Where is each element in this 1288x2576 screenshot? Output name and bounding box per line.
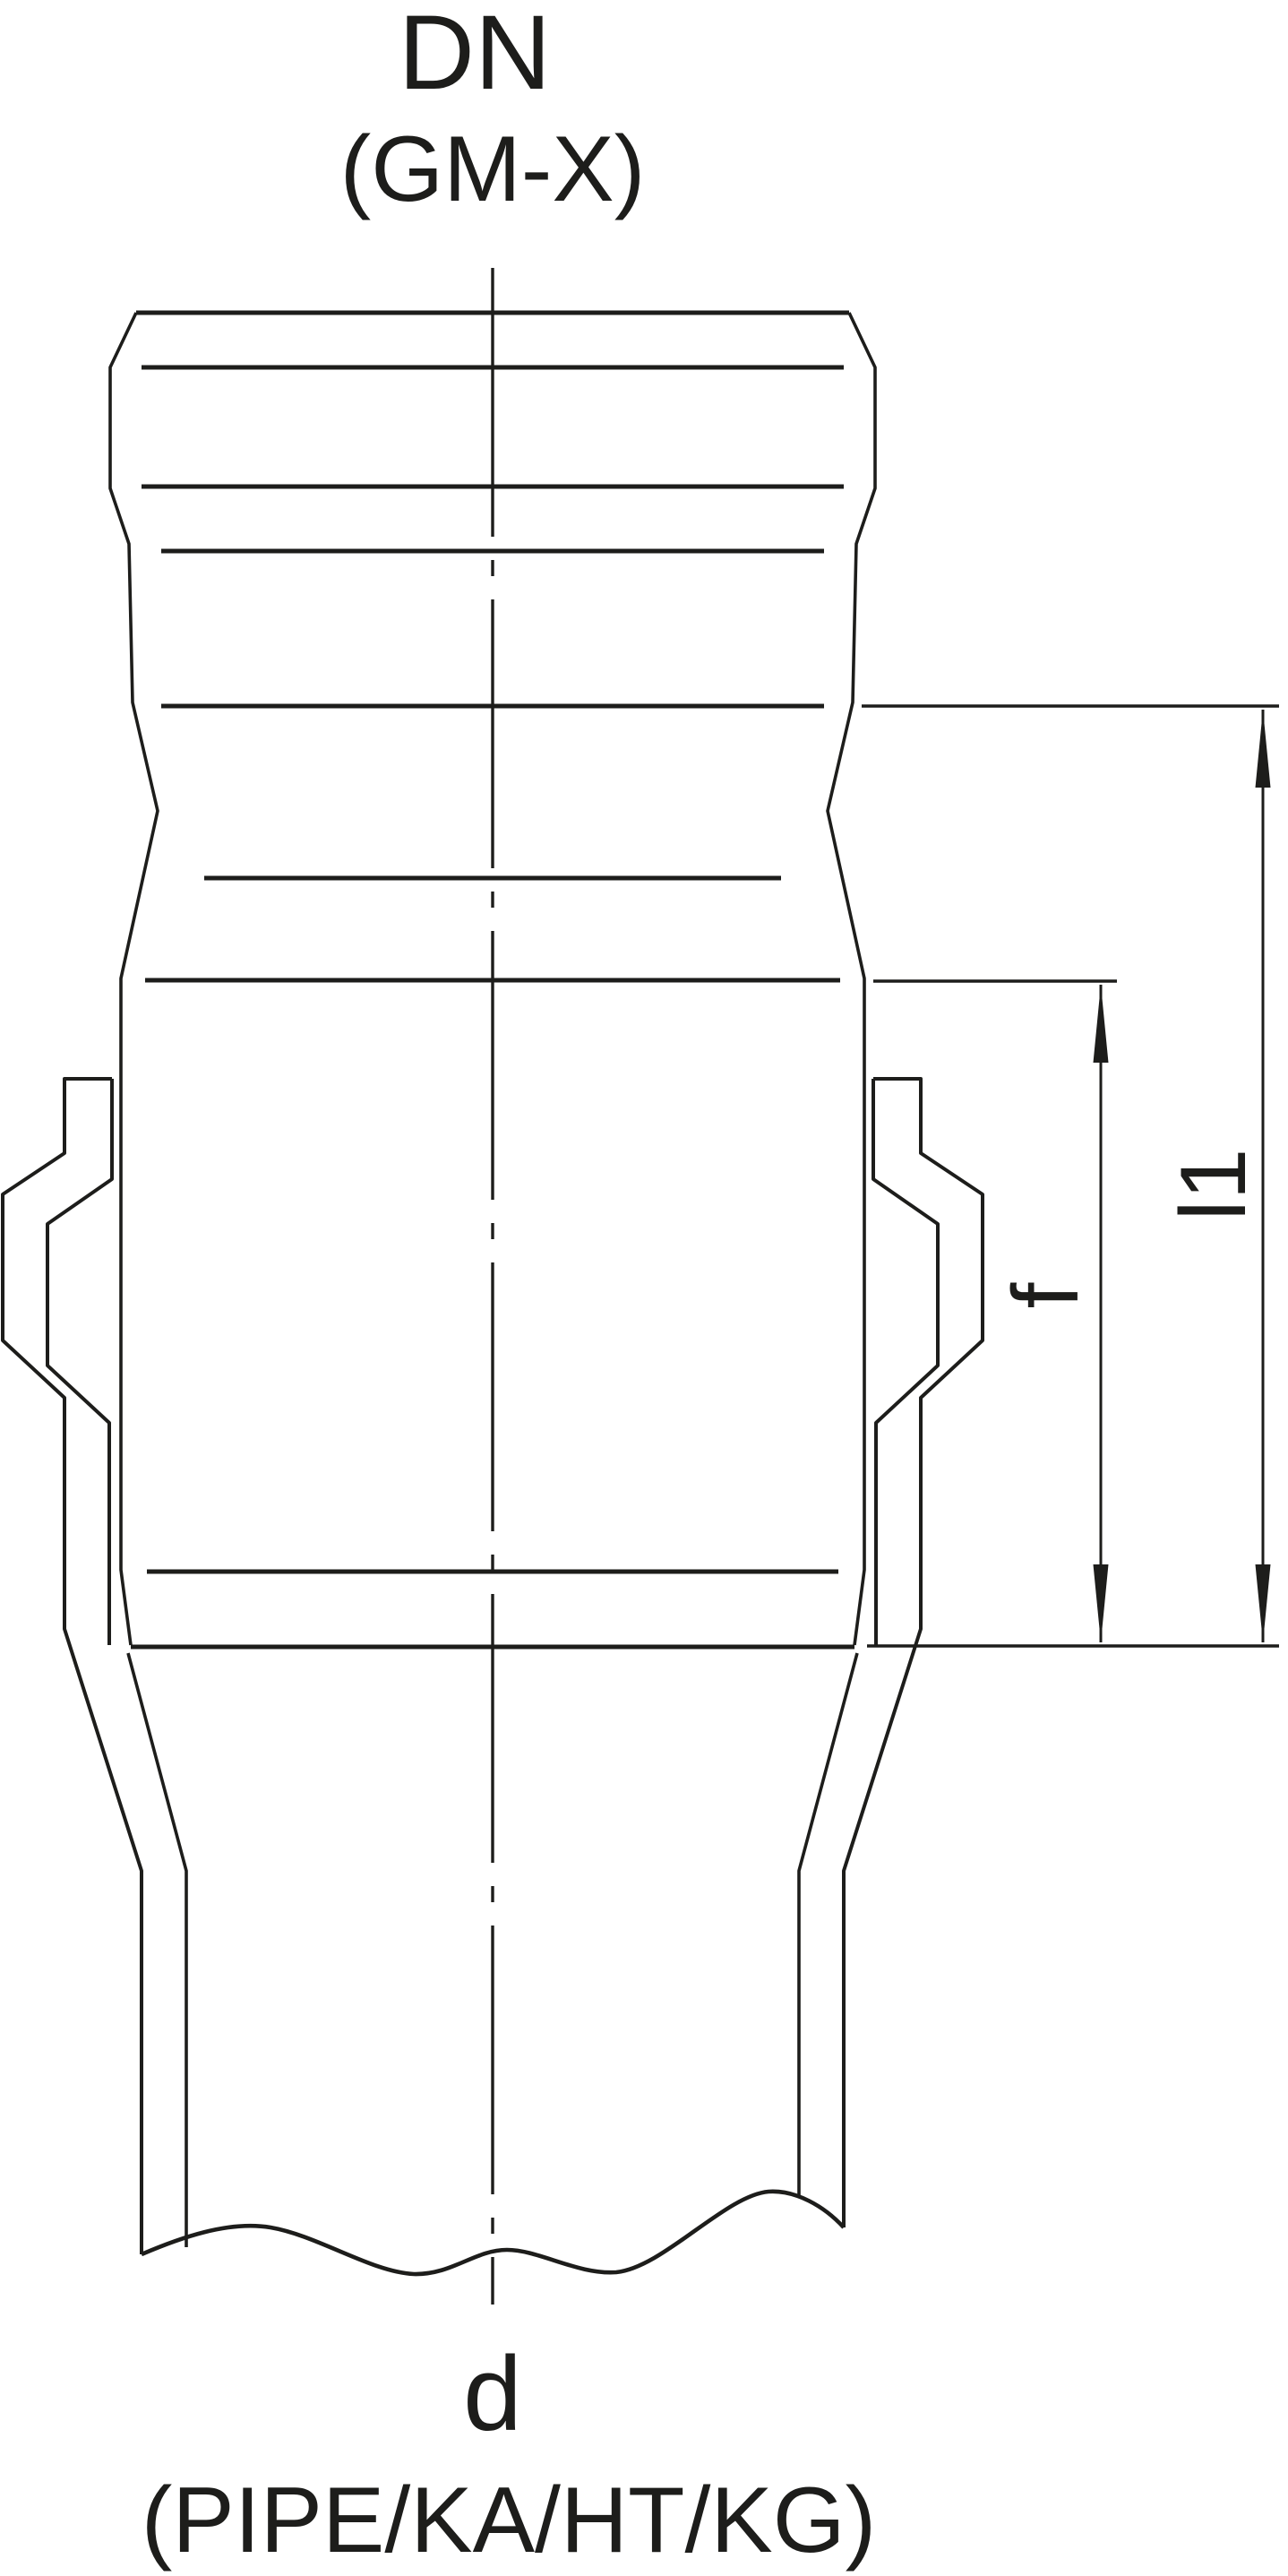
arrowhead-f-bottom bbox=[1094, 1564, 1109, 1642]
label-d: d bbox=[463, 2335, 522, 2453]
pipe-wall-right bbox=[799, 1653, 857, 2197]
arrowhead-f-top bbox=[1094, 985, 1109, 1063]
arrowhead-l1-top bbox=[1256, 710, 1271, 788]
label-dn: DN bbox=[399, 0, 551, 112]
technical-drawing-page: DN (GM-X) f l1 d (PIPE/KA/HT/KG) bbox=[0, 0, 1288, 2576]
pipe-wall-left bbox=[128, 1653, 186, 2247]
pipe-coupling-drawing: DN (GM-X) f l1 d (PIPE/KA/HT/KG) bbox=[0, 0, 1288, 2576]
label-gm-x: (GM-X) bbox=[340, 117, 646, 221]
label-dimension-l1: l1 bbox=[1162, 1149, 1266, 1221]
arrowhead-l1-bottom bbox=[1256, 1564, 1271, 1642]
label-dimension-f: f bbox=[994, 1281, 1098, 1308]
grip-ring-right-inner bbox=[873, 1079, 938, 1645]
label-pipe-types: (PIPE/KA/HT/KG) bbox=[142, 2468, 877, 2572]
grip-ring-left-inner bbox=[47, 1079, 112, 1645]
